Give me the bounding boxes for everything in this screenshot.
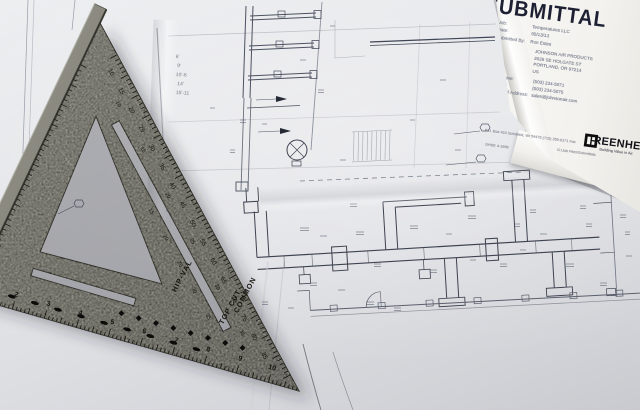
speed-square: 1015202530354045505560657075808510152025… xyxy=(0,0,640,410)
photo-blueprint-scene: 6' 9' 10'-6 14' 15'-11 SUBMITTAL Job:Tem… xyxy=(0,0,640,410)
